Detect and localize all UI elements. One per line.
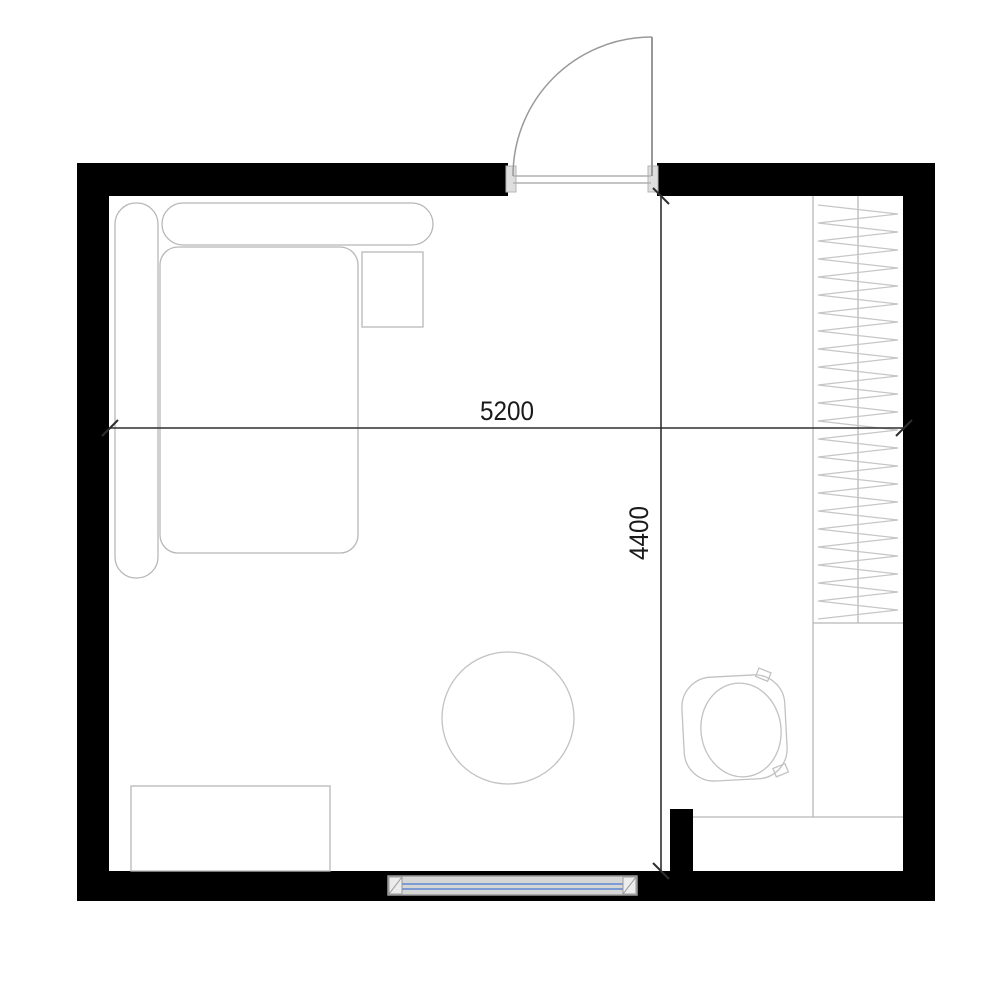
- left-wall: [77, 163, 109, 901]
- sofa-seat: [160, 247, 358, 553]
- dimension-height-label: 4400: [624, 506, 654, 560]
- dimension-width-label: 5200: [480, 396, 534, 426]
- toilet-bowl: [695, 678, 787, 782]
- toilet: [680, 668, 788, 783]
- floor-plan-canvas: 5200 4400: [0, 0, 1000, 1000]
- sofa-backrest-top: [162, 203, 433, 245]
- door-swing-arc: [513, 37, 652, 176]
- toilet-hinge-bottom: [773, 764, 788, 777]
- floor-plan-drawing: 5200 4400: [0, 0, 1000, 1000]
- toilet-body: [680, 673, 788, 782]
- door-jamb-left: [506, 166, 516, 192]
- round-rug: [442, 652, 574, 784]
- top-wall-left-segment: [77, 163, 508, 196]
- entry-door: [506, 37, 658, 192]
- dresser: [131, 786, 330, 871]
- vertical-dimension: 4400: [624, 188, 669, 879]
- window: [388, 876, 637, 895]
- top-wall-right-segment: [657, 163, 935, 196]
- sofa-armrest-left: [115, 203, 158, 578]
- wardrobe: [693, 196, 903, 817]
- partition-wall-stub: [670, 809, 693, 872]
- right-wall: [903, 163, 935, 901]
- window-frame: [388, 876, 637, 895]
- side-table: [362, 252, 423, 327]
